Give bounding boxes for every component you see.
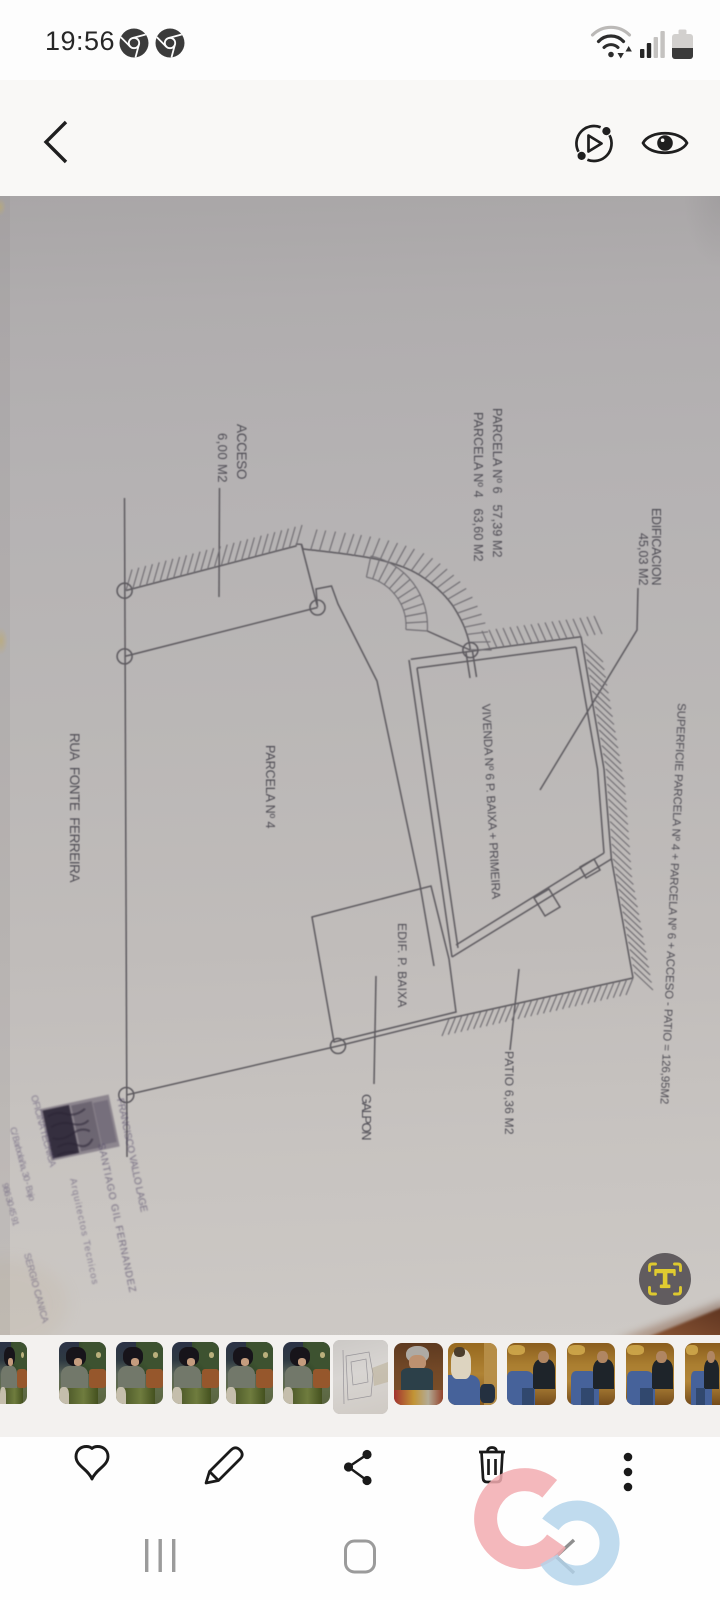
svg-text:Arquitectos Tecnicos: Arquitectos Tecnicos (67, 1177, 100, 1285)
svg-text:FRANCISCO VALLO LAGE: FRANCISCO VALLO LAGE (114, 1097, 149, 1213)
svg-text:RUA FONTE FERREIRA: RUA FONTE FERREIRA (67, 733, 82, 883)
svg-text:6,00 M2: 6,00 M2 (215, 433, 230, 483)
svg-text:SUPERFICIE PARCELA Nº 4 + PARC: SUPERFICIE PARCELA Nº 4 + PARCELA Nº 6 +… (657, 703, 687, 1105)
svg-text:EDIFICACION: EDIFICACION (649, 508, 663, 586)
svg-text:EDIF. P. BAIXA: EDIF. P. BAIXA (395, 923, 409, 1008)
svg-text:ACCESO: ACCESO (234, 424, 249, 480)
svg-text:PARCELA Nº 6 57,39 M2: PARCELA Nº 6 57,39 M2 (490, 408, 504, 558)
svg-text:45,03 M2: 45,03 M2 (636, 533, 650, 586)
svg-text:PARCELA Nº 4 63,60 M2: PARCELA Nº 4 63,60 M2 (471, 412, 485, 562)
svg-text:PATIO 6,36 M2: PATIO 6,36 M2 (502, 1051, 516, 1135)
svg-text:PARCELA Nº 4: PARCELA Nº 4 (263, 745, 277, 829)
svg-text:GALPON: GALPON (359, 1094, 374, 1141)
svg-text:VIVENDA Nº 6 P. BAIXA + PRIMEI: VIVENDA Nº 6 P. BAIXA + PRIMEIRA (479, 703, 503, 899)
